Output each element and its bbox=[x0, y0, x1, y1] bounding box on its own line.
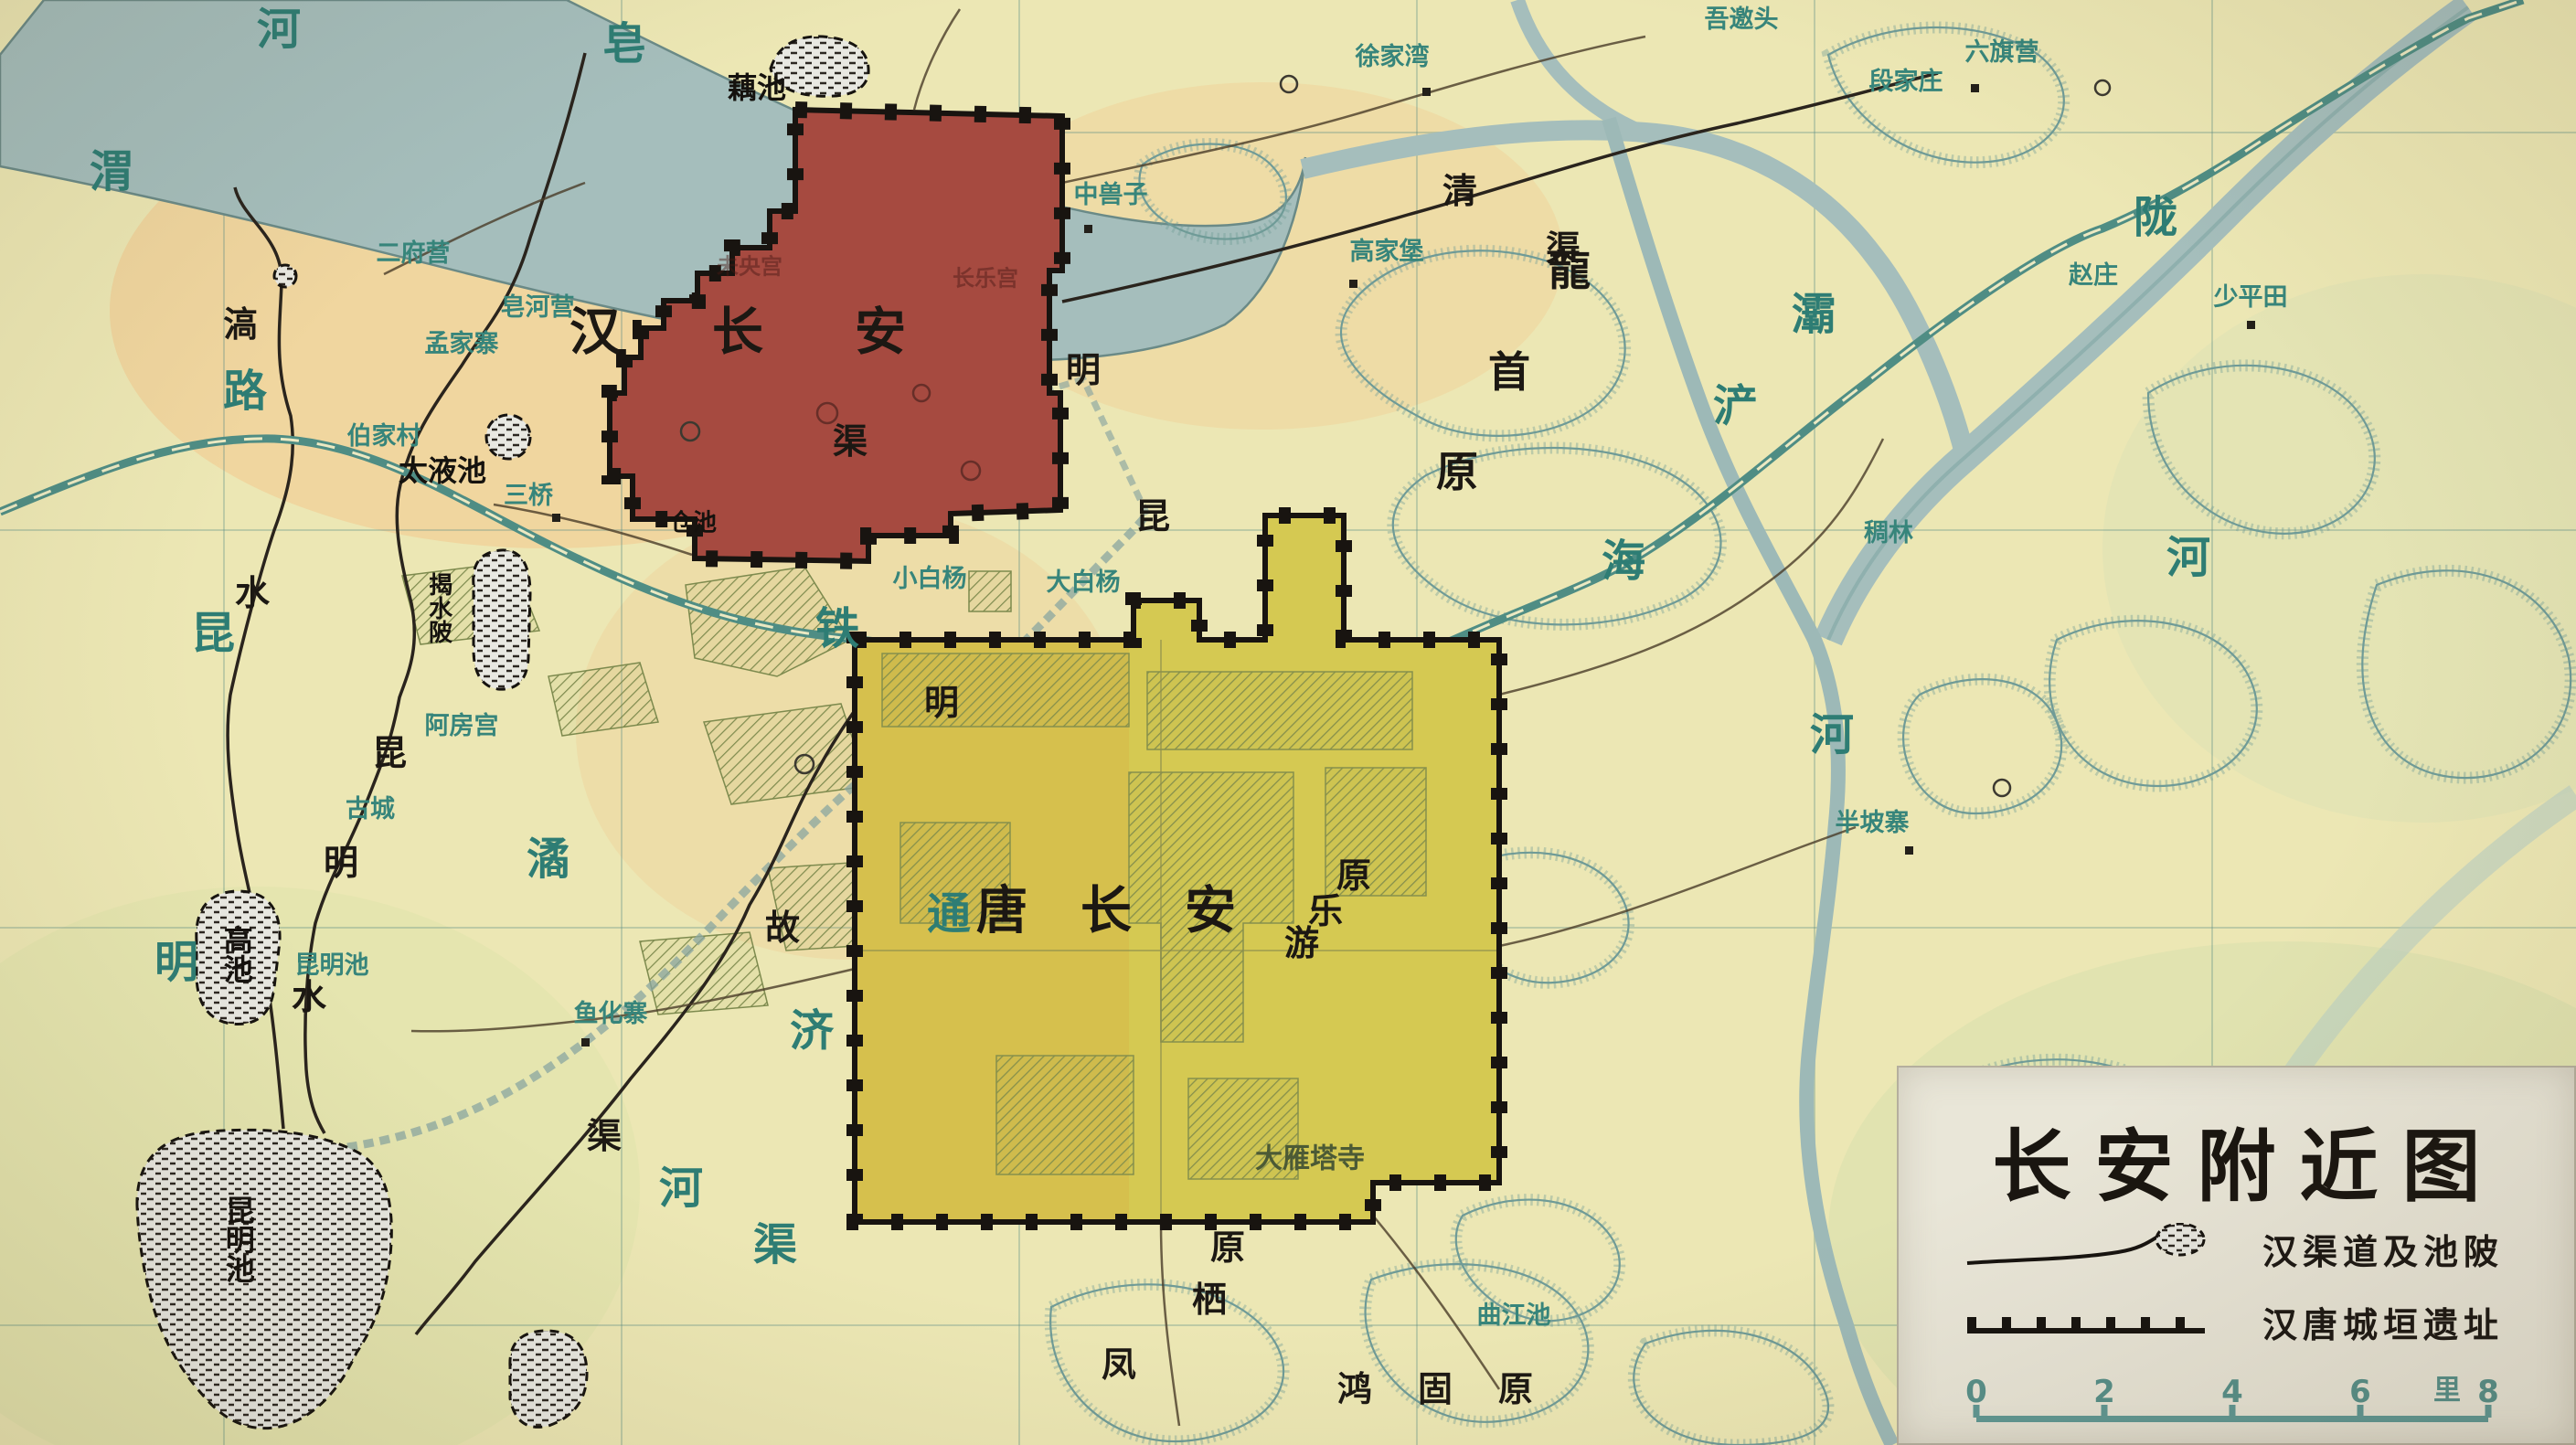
map-label-吾邀头: 吾邀头 bbox=[1705, 7, 1779, 33]
map-label-三桥: 三桥 bbox=[504, 483, 553, 509]
scale-tick-mark bbox=[2486, 1405, 2492, 1418]
map-label-首: 首 bbox=[1488, 350, 1530, 394]
map-label-渠: 渠 bbox=[833, 424, 868, 461]
map-label-河: 河 bbox=[1810, 712, 1854, 758]
map-label-渠: 渠 bbox=[1546, 231, 1581, 268]
map-title: 长安附近图 bbox=[1899, 1102, 2574, 1217]
map-label-凤: 凤 bbox=[1102, 1347, 1136, 1384]
map-label-原: 原 bbox=[1436, 450, 1478, 494]
map-label-揭水陂: 揭水陂 bbox=[425, 572, 450, 643]
map-label-通: 通 bbox=[927, 891, 971, 937]
map-label-古城: 古城 bbox=[346, 797, 395, 823]
scale-unit: 里 bbox=[2433, 1367, 2461, 1408]
map-label-原: 原 bbox=[1336, 858, 1371, 895]
map-label-仓池: 仓池 bbox=[669, 511, 717, 536]
scale-tick-mark bbox=[2102, 1405, 2108, 1418]
map-label-大白杨: 大白杨 bbox=[1047, 570, 1121, 596]
legend-item-han-canal: 汉渠道及池陂 bbox=[1963, 1223, 2504, 1274]
scale-tick-mark bbox=[2358, 1405, 2364, 1418]
map-label-游: 游 bbox=[1284, 926, 1319, 962]
map-label-孟家寨: 孟家寨 bbox=[425, 332, 499, 357]
scale-bar: 02468 bbox=[1976, 1374, 2488, 1425]
map-label-伯家村: 伯家村 bbox=[347, 424, 421, 450]
map-label-灞: 灞 bbox=[1792, 292, 1836, 337]
legend-label: 汉唐城垣遗址 bbox=[2262, 1297, 2504, 1347]
map-label-河: 河 bbox=[2166, 535, 2210, 580]
map-label-渭: 渭 bbox=[90, 149, 133, 195]
scale-line bbox=[1976, 1410, 2488, 1425]
map-label-高家堡: 高家堡 bbox=[1350, 239, 1424, 265]
map-label-太液池: 太液池 bbox=[399, 456, 486, 487]
map-label-水: 水 bbox=[235, 576, 270, 612]
map-label-昆明池: 昆明池 bbox=[295, 953, 369, 979]
map-label-昆明池: 昆明池 bbox=[222, 1195, 253, 1283]
map-label-河: 河 bbox=[257, 6, 301, 52]
map-label-高池: 高池 bbox=[220, 925, 251, 983]
map-label-铁: 铁 bbox=[815, 606, 859, 652]
map-label-段家庄: 段家庄 bbox=[1869, 69, 1943, 95]
map-label-明: 明 bbox=[324, 845, 358, 882]
map-label-稠林: 稠林 bbox=[1864, 521, 1913, 547]
wall-ruin-symbol-icon bbox=[1963, 1296, 2237, 1347]
map-label-徐家湾: 徐家湾 bbox=[1356, 45, 1430, 70]
map-label-明: 明 bbox=[924, 685, 959, 722]
map-label-明: 明 bbox=[1066, 353, 1101, 389]
map-label-六旗营: 六旗营 bbox=[1965, 40, 2039, 66]
map-label-半坡寨: 半坡寨 bbox=[1836, 811, 1910, 836]
map-label-二府营: 二府营 bbox=[377, 241, 451, 267]
map-label-昆: 昆 bbox=[372, 736, 407, 772]
map-label-昆: 昆 bbox=[191, 611, 235, 656]
map-label-鱼化寨: 鱼化寨 bbox=[574, 1002, 648, 1027]
map-label-阿房宫: 阿房宫 bbox=[425, 714, 499, 739]
map-label-海: 海 bbox=[1602, 538, 1645, 584]
map-label-渠: 渠 bbox=[587, 1119, 622, 1155]
map-label-潏: 潏 bbox=[527, 836, 570, 882]
map-label-滈: 滈 bbox=[223, 307, 258, 344]
map-label-路: 路 bbox=[223, 368, 267, 414]
scale-tick-mark bbox=[2230, 1405, 2236, 1418]
legend-label: 汉渠道及池陂 bbox=[2262, 1224, 2504, 1274]
map-label-未央宫: 未央宫 bbox=[717, 255, 782, 278]
map-label-原: 原 bbox=[1210, 1230, 1245, 1267]
map-label-龍: 龍 bbox=[1549, 249, 1591, 292]
map-label-中兽子: 中兽子 bbox=[1074, 183, 1148, 208]
legend-item-wall-ruins: 汉唐城垣遗址 bbox=[1963, 1296, 2504, 1347]
map-label-大雁塔寺: 大雁塔寺 bbox=[1255, 1144, 1365, 1174]
map-label-长乐宫: 长乐宫 bbox=[953, 267, 1018, 290]
legend-box: 长安附近图 汉渠道及池陂 汉唐城垣遗址 02468 里 bbox=[1897, 1066, 2576, 1445]
map-label-鸿固原: 鸿固原 bbox=[1337, 1372, 1579, 1408]
map-label-汉长安: 汉长安 bbox=[569, 307, 997, 361]
map-label-皂: 皂 bbox=[602, 21, 646, 67]
map-label-陇: 陇 bbox=[2134, 195, 2177, 240]
chang-an-vicinity-map: 河渭皂路昆明潏通济河渠铁海陇浐河灞河吾邀头徐家湾六旗营段家庄中兽子高家堡赵庄少平… bbox=[0, 0, 2576, 1445]
map-label-清: 清 bbox=[1442, 174, 1477, 210]
map-label-济: 济 bbox=[790, 1008, 834, 1054]
map-label-藕池: 藕池 bbox=[728, 73, 786, 104]
map-label-赵庄: 赵庄 bbox=[2069, 263, 2118, 289]
map-label-皂河营: 皂河营 bbox=[501, 295, 575, 321]
map-label-唐长安: 唐长安 bbox=[976, 886, 1289, 940]
map-label-故: 故 bbox=[765, 910, 800, 947]
map-label-渠: 渠 bbox=[753, 1222, 797, 1268]
map-label-少平田: 少平田 bbox=[2214, 285, 2288, 311]
map-label-昆: 昆 bbox=[1135, 499, 1170, 536]
canal-pond-symbol-icon bbox=[1963, 1223, 2237, 1274]
map-label-栖: 栖 bbox=[1192, 1282, 1227, 1319]
scale-tick-mark bbox=[1974, 1405, 1980, 1418]
map-label-乐: 乐 bbox=[1308, 894, 1343, 930]
map-label-曲江池: 曲江池 bbox=[1477, 1303, 1551, 1329]
map-label-明: 明 bbox=[154, 940, 198, 985]
map-label-水: 水 bbox=[292, 980, 326, 1016]
map-label-浐: 浐 bbox=[1713, 383, 1757, 429]
map-label-小白杨: 小白杨 bbox=[893, 567, 967, 592]
map-label-河: 河 bbox=[659, 1165, 703, 1211]
